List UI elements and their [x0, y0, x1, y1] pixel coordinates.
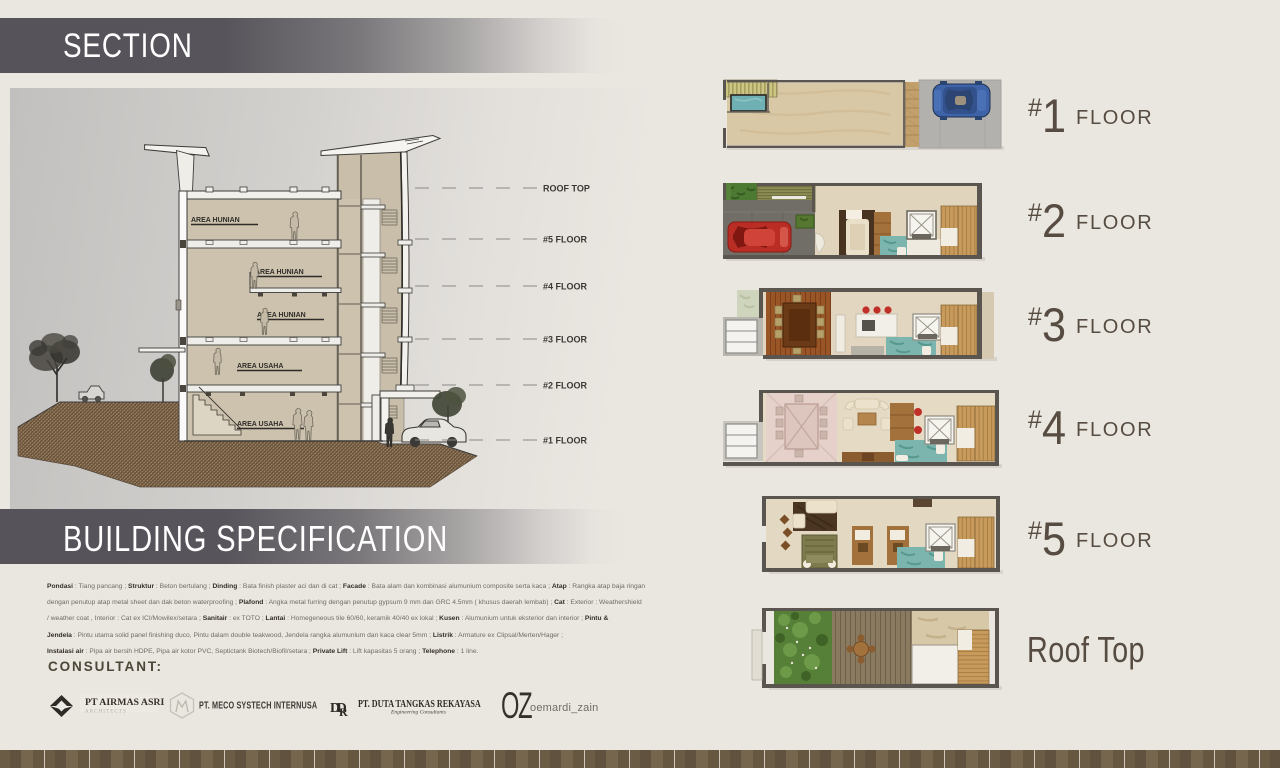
svg-text:R: R	[339, 705, 348, 719]
svg-text:#1 FLOOR: #1 FLOOR	[543, 436, 588, 446]
svg-text:#3 FLOOR: #3 FLOOR	[543, 335, 588, 345]
svg-text:ROOF TOP: ROOF TOP	[543, 184, 590, 194]
svg-text:PT AIRMAS ASRI: PT AIRMAS ASRI	[85, 697, 164, 708]
svg-text:OZ: OZ	[501, 685, 532, 727]
svg-text:oemardi_zain: oemardi_zain	[530, 702, 598, 714]
svg-text:#2 FLOOR: #2 FLOOR	[543, 381, 588, 391]
svg-text:#5 FLOOR: #5 FLOOR	[543, 235, 588, 245]
svg-text:AREA USAHA: AREA USAHA	[237, 421, 283, 428]
svg-text:PT. MECO SYSTECH INTERNUSA: PT. MECO SYSTECH INTERNUSA	[199, 699, 318, 711]
svg-text:PT. DUTA TANGKAS REKAYASA: PT. DUTA TANGKAS REKAYASA	[358, 698, 481, 709]
svg-text:Engineering Consultants: Engineering Consultants	[390, 710, 446, 716]
svg-text:#4 FLOOR: #4 FLOOR	[543, 282, 588, 292]
svg-text:AREA HUNIAN: AREA HUNIAN	[255, 269, 304, 276]
svg-text:AREA HUNIAN: AREA HUNIAN	[191, 217, 240, 224]
svg-text:ARCHITECTS: ARCHITECTS	[85, 710, 127, 715]
svg-text:AREA USAHA: AREA USAHA	[237, 363, 283, 370]
